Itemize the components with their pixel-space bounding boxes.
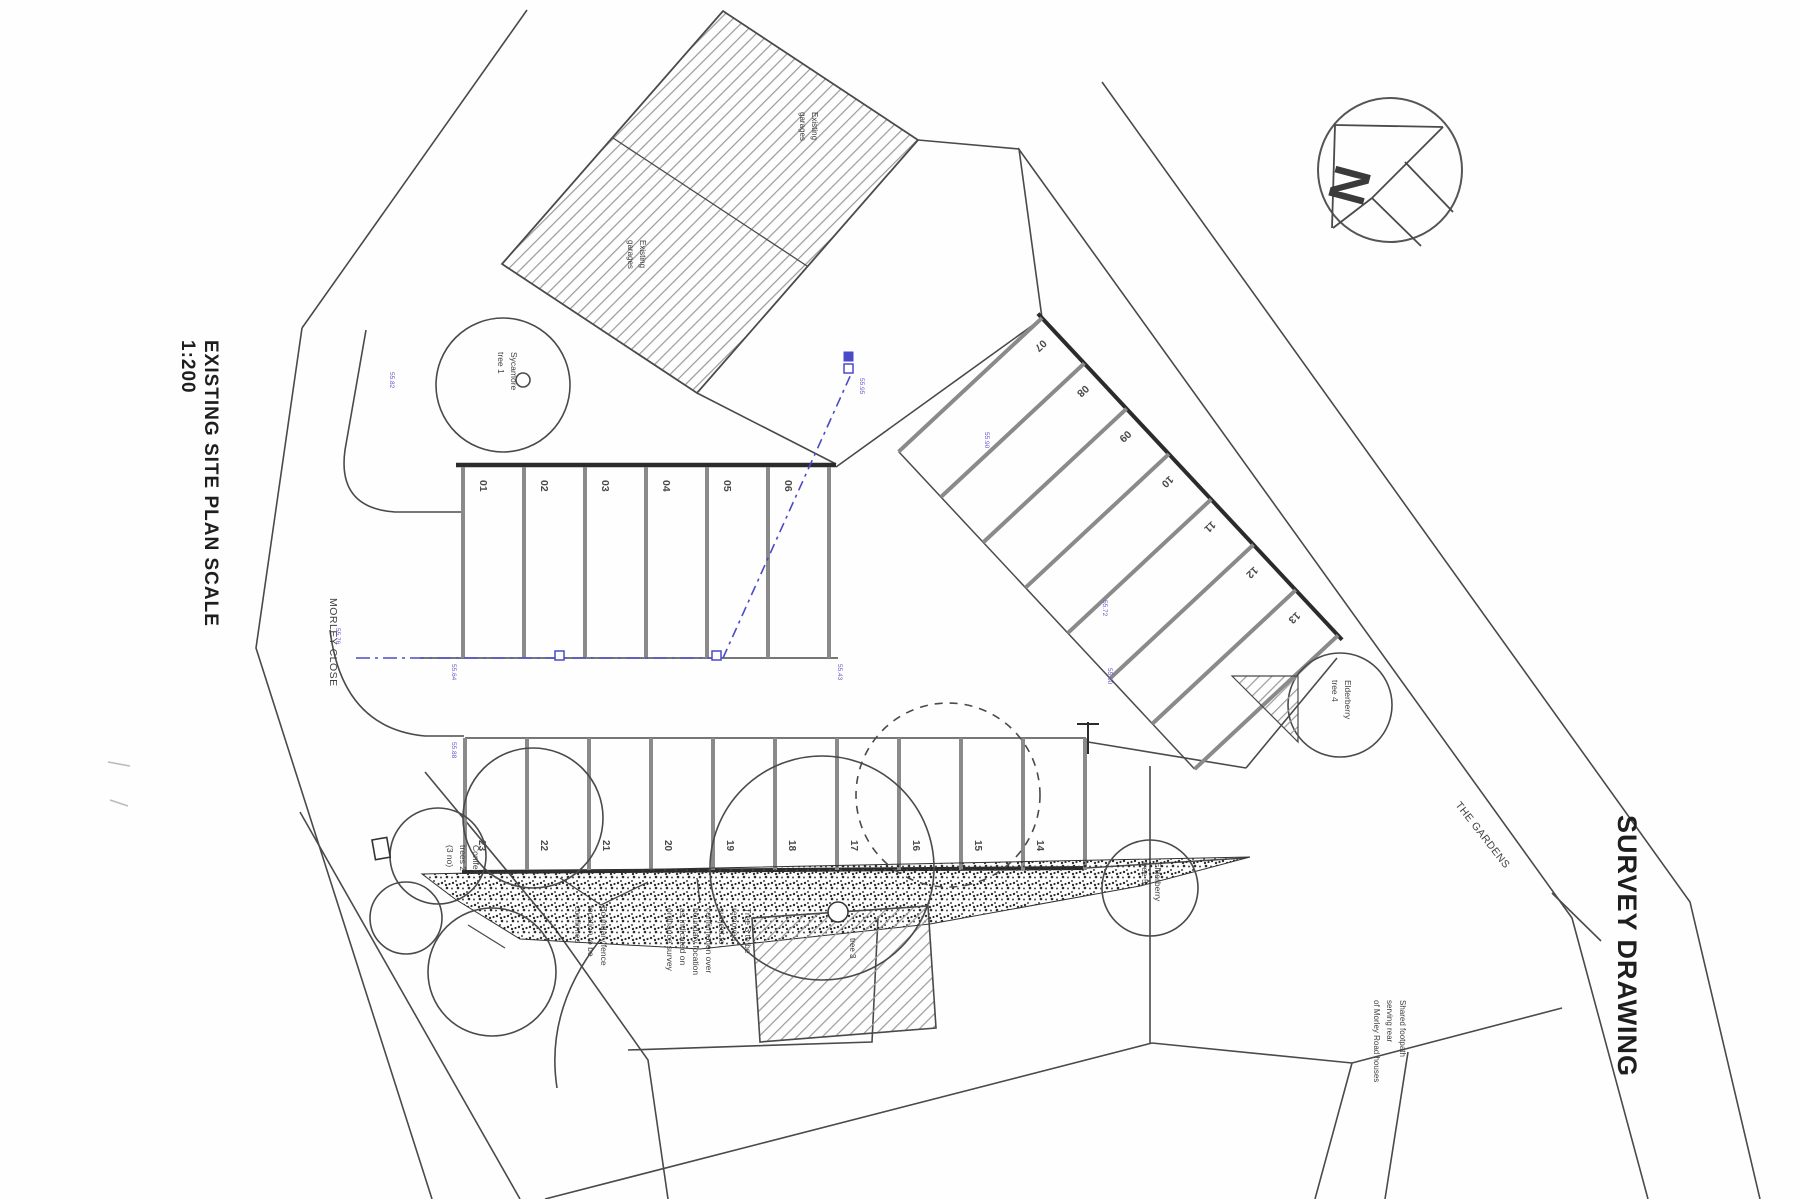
morley-close-east-curb	[344, 330, 462, 512]
stall-divider	[899, 318, 1042, 452]
garage-note-line: Existing	[638, 240, 647, 268]
survey-drawing-page: Existing garages Existing garages 01 02 …	[0, 0, 1800, 1199]
workshop-tree-label: tree 3	[848, 938, 857, 959]
workshop-building: tree 3	[752, 906, 936, 1042]
stall-number: 18	[786, 840, 797, 852]
stall-number: 10	[1159, 473, 1176, 490]
stall-number: 21	[600, 840, 611, 852]
level-marker: 55.82	[388, 372, 395, 389]
tree3-note: ordnance survey	[665, 908, 675, 972]
north-label: N	[1318, 160, 1384, 211]
tree3-note: confirmation over	[704, 908, 714, 973]
footpath-note: of Morley Road houses	[1372, 1000, 1381, 1082]
compass-line	[1372, 198, 1421, 246]
footpath-edge-3	[1315, 1063, 1352, 1199]
utility-marker	[555, 651, 564, 660]
workshop-outline	[752, 906, 936, 1042]
tree3-note: as indicated on	[678, 908, 688, 965]
level-markers: 55.82 55.64 55.43 55.88 55.90 55.72 55.6…	[334, 372, 1113, 759]
stall-number: 02	[538, 480, 550, 492]
stall-number: 19	[724, 840, 735, 852]
yard-sw-boundary	[425, 772, 668, 1199]
footpath-note: Shared footpath	[1398, 1000, 1407, 1057]
drawing-title-left: EXISTING SITE PLAN SCALE	[200, 340, 221, 627]
elderberry4-label: tree 4	[1330, 680, 1340, 702]
stall-number: 13	[1286, 609, 1303, 626]
garage-to-road-line	[918, 140, 1019, 149]
stall-number: 15	[972, 840, 983, 852]
tree3-note: Tree 3 to be	[743, 908, 753, 954]
stall-number: 14	[1034, 840, 1045, 852]
garage-note-line: garages	[626, 240, 635, 269]
elderberry5-label: Elderberry	[1153, 862, 1163, 902]
elderberry5-label: tree 5	[1140, 862, 1150, 884]
garage-block: Existing garages Existing garages	[502, 11, 918, 393]
lower-yard-entrance-curb	[330, 630, 464, 736]
utility-endpoint	[844, 364, 853, 373]
sycamore-canopy	[436, 318, 570, 452]
level-marker: 55.64	[450, 664, 457, 681]
tree3-trunk	[828, 902, 848, 922]
tree3-note: subject to	[717, 908, 727, 945]
parking-row-3: 23 22 21 20 19 18 17 16 15 14	[462, 722, 1245, 872]
gardens-road-east-edge	[1102, 82, 1760, 1199]
stall-number: 01	[477, 480, 489, 492]
conifer-label: Conifer	[471, 845, 481, 873]
sycamore-label: Sycamore	[509, 352, 519, 391]
level-marker: 55.88	[450, 742, 457, 759]
row2-rear-line	[899, 452, 1195, 769]
edge-tick-2	[110, 800, 128, 806]
footpath-edge-1	[1152, 1043, 1352, 1063]
stall-number: 20	[662, 840, 673, 852]
stall-divider	[983, 409, 1126, 543]
stall-divider	[941, 363, 1084, 497]
level-marker: 55.95	[858, 378, 865, 395]
footpath-edge-4	[1385, 1052, 1408, 1199]
stall-divider	[1110, 545, 1253, 679]
boundary-fence-note: Boundary fence	[599, 906, 609, 966]
stall-number: 12	[1243, 564, 1260, 581]
road-edge-topleft	[302, 10, 527, 328]
conifer-label: (3 no)	[445, 845, 455, 867]
parking-row-1: 01 02 03 04 05 06	[456, 465, 836, 658]
compass-line	[1405, 162, 1453, 212]
stall-number: 04	[660, 480, 672, 492]
site-plan-canvas: Existing garages Existing garages 01 02 …	[0, 0, 1800, 1199]
stall-divider	[1026, 454, 1169, 588]
level-marker: 55.76	[334, 628, 341, 645]
road-verge-link	[1019, 149, 1042, 318]
bottom-boundary	[545, 1043, 1152, 1199]
hatched-patch	[1232, 676, 1298, 742]
sycamore-label: tree 1	[496, 352, 506, 374]
tree3-canopy-dashed	[856, 703, 1040, 887]
stall-number: 08	[1074, 382, 1091, 399]
footpath-edge-2	[1352, 1008, 1562, 1063]
boundary-fence-note: location to be	[586, 906, 596, 957]
boundary-fence-note: confirmed	[573, 906, 583, 944]
stall-number: 05	[721, 480, 733, 492]
stall-divider	[1068, 499, 1211, 633]
stall-number: 03	[599, 480, 611, 492]
stall-number: 06	[782, 480, 794, 492]
level-marker: 55.72	[1101, 600, 1108, 617]
conifer-canopy-2	[428, 908, 556, 1036]
drawing-scale: 1:200	[177, 340, 198, 394]
stall-number: 22	[538, 840, 549, 852]
compass-line	[1335, 125, 1443, 127]
footpath-note: serving rear	[1385, 1000, 1394, 1043]
garage-note-line: Existing	[810, 112, 819, 140]
stall-number: 11	[1202, 518, 1218, 534]
tree3-note: boundary location	[691, 908, 701, 975]
rear-garden-curve	[555, 940, 600, 1088]
conifer-label: trees 2	[458, 845, 468, 871]
level-marker: 55.90	[983, 432, 990, 449]
survey-marker-box	[372, 837, 390, 859]
stall-tree-canopy	[463, 748, 603, 888]
tree3-note: removed	[730, 908, 740, 941]
stall-number: 07	[1032, 337, 1049, 354]
drawing-title-right: SURVEY DRAWING	[1612, 815, 1642, 1077]
edge-tick-1	[108, 762, 130, 766]
stall-number: 17	[848, 840, 859, 852]
level-marker: 55.43	[836, 664, 843, 681]
compass-line	[1372, 127, 1443, 198]
north-compass: N	[1318, 98, 1462, 246]
street-label-the-gardens: THE GARDENS	[1453, 799, 1513, 870]
utility-line-diagonal	[723, 372, 852, 658]
row1-row2-link	[836, 320, 1040, 467]
utility-marker	[712, 651, 721, 660]
conifer-label-leader	[468, 925, 505, 948]
level-marker: 55.60	[1106, 668, 1113, 685]
stall-number: 16	[910, 840, 921, 852]
utility-endpoint	[844, 352, 853, 361]
stall-number: 09	[1117, 428, 1134, 445]
elderberry4-label: Elderberry	[1343, 680, 1353, 720]
utility-line	[356, 352, 853, 660]
garage-note-line: garages	[798, 112, 807, 141]
elderberry4-canopy	[1288, 653, 1392, 757]
